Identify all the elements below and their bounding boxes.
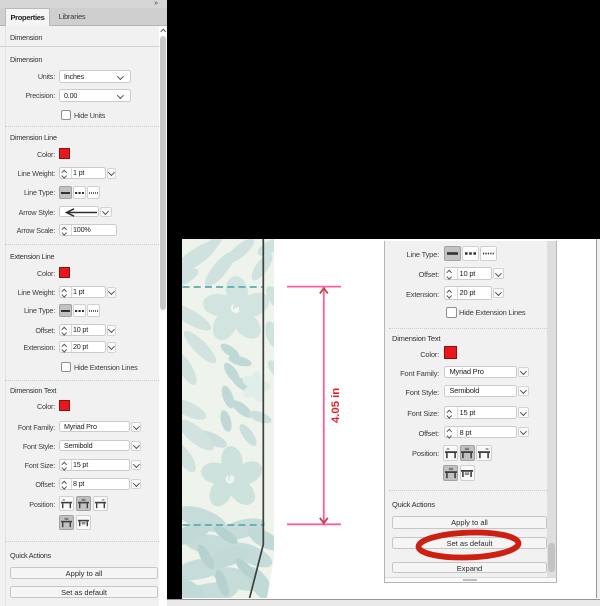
svg-text:4.05 in: 4.05 in bbox=[330, 388, 342, 423]
